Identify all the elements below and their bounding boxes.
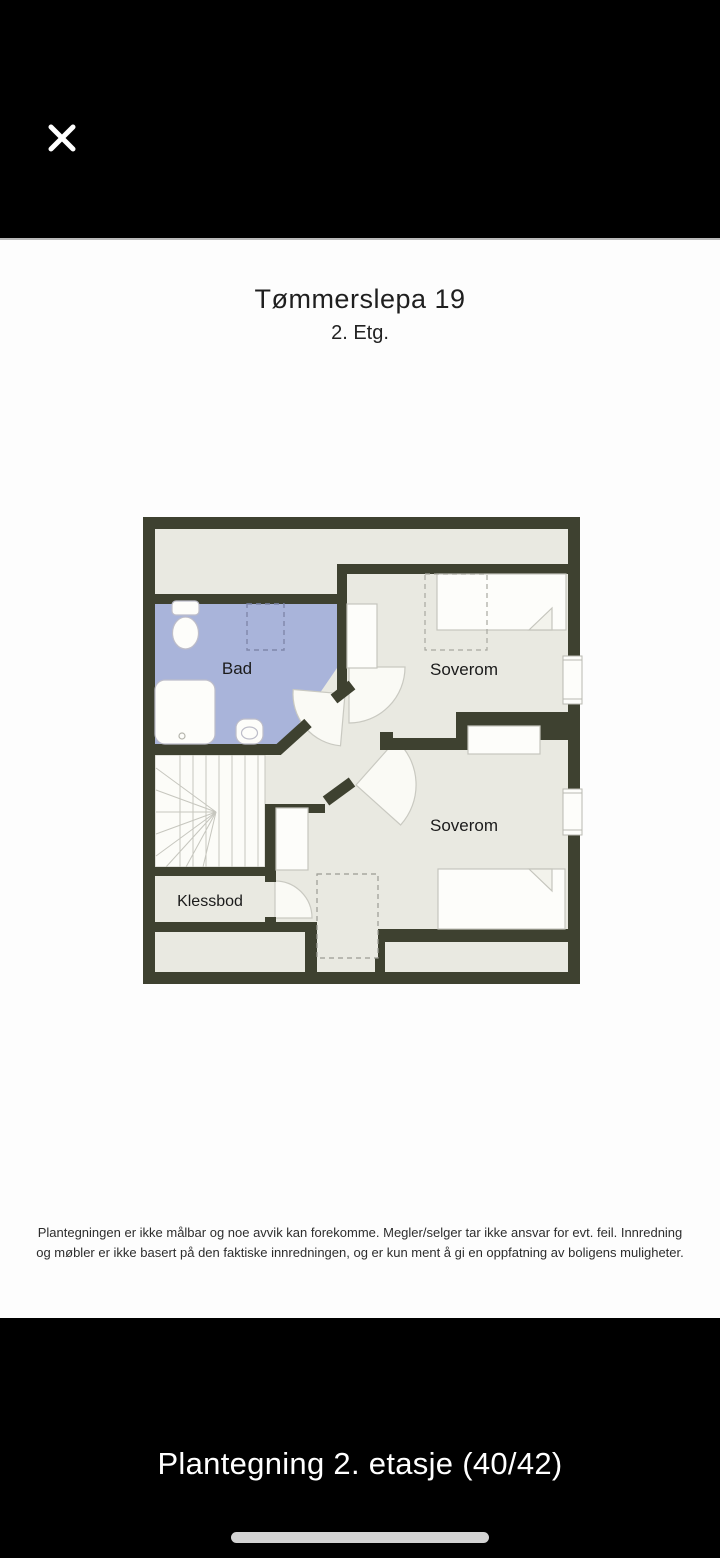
- disclaimer-line-1: Plantegningen er ikke målbar og noe avvi…: [38, 1225, 683, 1240]
- disclaimer-text: Plantegningen er ikke målbar og noe avvi…: [0, 1223, 720, 1262]
- home-indicator[interactable]: [231, 1532, 489, 1543]
- wardrobe-icon: [347, 604, 377, 668]
- dresser-icon: [468, 726, 540, 754]
- room-label-bathroom: Bad: [222, 659, 252, 678]
- window-bedroom-bottom: [563, 789, 582, 835]
- room-label-closet: Klessbod: [177, 893, 243, 910]
- staircase: [155, 755, 265, 867]
- room-label-bedroom-top: Soverom: [430, 660, 498, 679]
- floorplan-image[interactable]: Tømmerslepa 19 2. Etg.: [0, 238, 720, 1318]
- window-bedroom-top: [563, 656, 582, 704]
- room-label-bedroom-bottom: Soverom: [430, 816, 498, 835]
- top-bar: [0, 0, 720, 238]
- sink-icon: [236, 719, 263, 744]
- floorplan-drawing: Bad Soverom Soverom Klessbod: [0, 240, 720, 1320]
- void-dashed-outline: [317, 874, 378, 958]
- close-icon: [47, 123, 77, 153]
- disclaimer-line-2: og møbler er ikke basert på den faktiske…: [36, 1245, 684, 1260]
- close-button[interactable]: [38, 114, 86, 162]
- photo-viewer-screen: Tømmerslepa 19 2. Etg.: [0, 0, 720, 1558]
- toilet-icon: [172, 601, 199, 615]
- bottom-bar: Plantegning 2. etasje (40/42): [0, 1318, 720, 1558]
- photo-caption: Plantegning 2. etasje (40/42): [0, 1446, 720, 1482]
- hall-cabinet-icon: [276, 808, 308, 870]
